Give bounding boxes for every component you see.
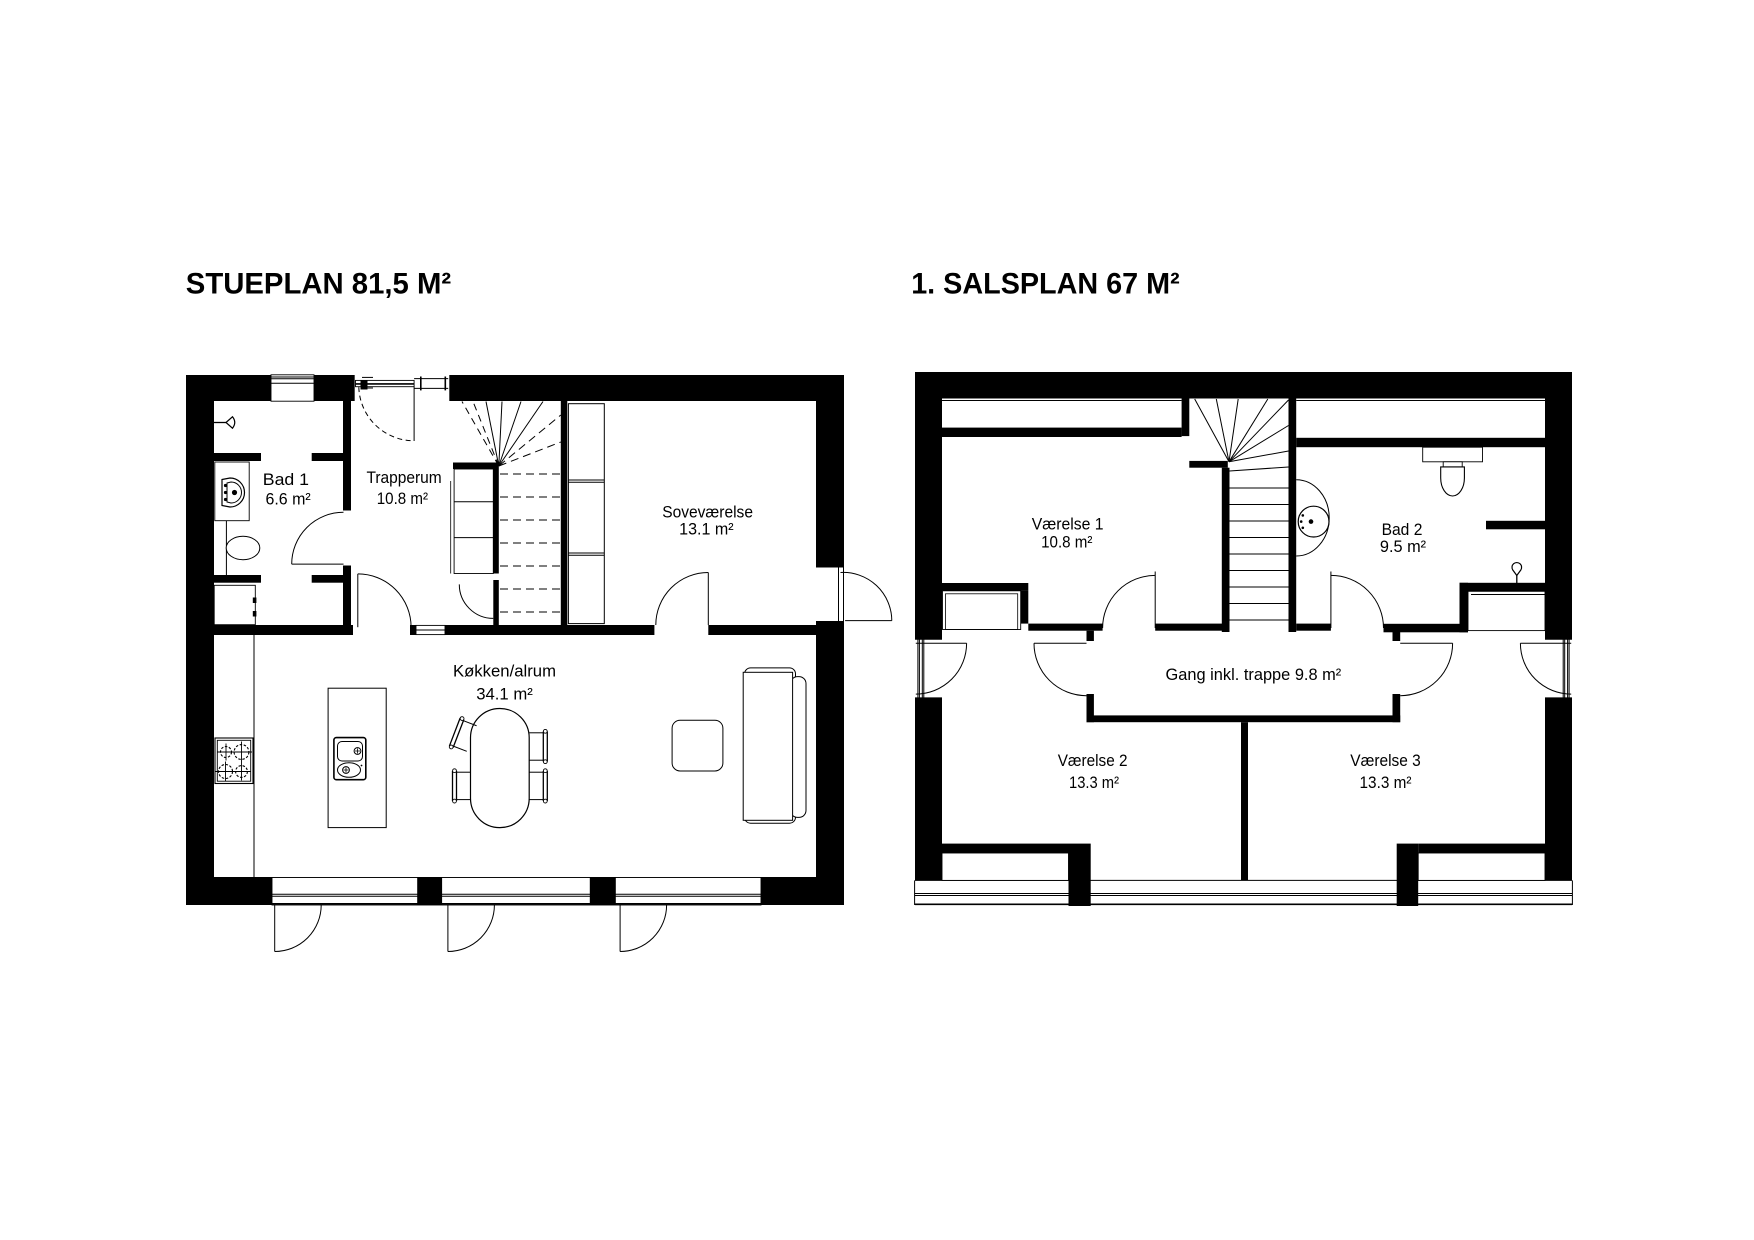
svg-text:9.5 m²: 9.5 m²: [1380, 537, 1427, 556]
svg-text:Værelse 2: Værelse 2: [1058, 751, 1128, 770]
svg-text:10.8 m²: 10.8 m²: [377, 489, 429, 508]
svg-text:STUEPLAN 81,5 M²: STUEPLAN 81,5 M²: [186, 267, 451, 300]
svg-text:13.3 m²: 13.3 m²: [1069, 773, 1119, 792]
svg-text:1. SALSPLAN 67 M²: 1. SALSPLAN 67 M²: [911, 267, 1179, 300]
svg-text:6.6 m²: 6.6 m²: [266, 489, 312, 508]
svg-text:13.1 m²: 13.1 m²: [679, 520, 734, 539]
svg-text:Køkken/alrum: Køkken/alrum: [453, 662, 556, 681]
svg-text:Værelse 1: Værelse 1: [1032, 515, 1104, 534]
svg-text:Trapperum: Trapperum: [366, 468, 441, 487]
svg-text:34.1 m²: 34.1 m²: [476, 684, 533, 703]
svg-text:Værelse 3: Værelse 3: [1350, 751, 1421, 770]
svg-text:Bad 1: Bad 1: [263, 470, 309, 489]
svg-text:Gang inkl. trappe 9.8 m²: Gang inkl. trappe 9.8 m²: [1166, 665, 1342, 684]
svg-text:13.3 m²: 13.3 m²: [1360, 773, 1412, 792]
svg-text:10.8 m²: 10.8 m²: [1041, 533, 1093, 552]
